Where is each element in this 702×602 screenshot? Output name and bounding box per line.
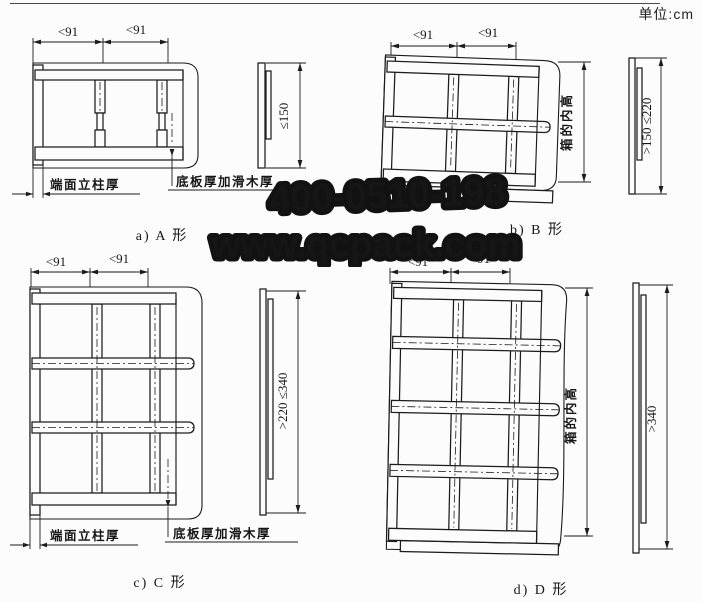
figure-d-front-view-drawing bbox=[386, 281, 567, 555]
figure-b-caption: b) B 形 bbox=[510, 222, 564, 238]
dim-label-91-right: <91 bbox=[478, 25, 498, 40]
box-inner-height-label: 箱的内高 bbox=[563, 386, 578, 444]
dim-label-91-right: <91 bbox=[109, 253, 129, 266]
figure-c-type-c-end-panel: <91 <91 端面立柱厚 bbox=[0, 253, 351, 602]
figure-a-caption: a) A 形 bbox=[136, 228, 188, 244]
figure-c-post-thickness-dim: 端面立柱厚 bbox=[10, 515, 138, 549]
dim-label-91-left: <91 bbox=[413, 27, 433, 42]
figure-d-side-view-drawing: >340 bbox=[633, 283, 673, 553]
figure-c-side-view-drawing: >220 ≤340 bbox=[260, 289, 306, 515]
figure-b-inner-height-dimension: 箱的内高 bbox=[558, 62, 591, 182]
figure-b-front-view-drawing bbox=[381, 55, 561, 203]
bottom-board-label: 底板厚加滑木厚 bbox=[176, 174, 274, 189]
scanned-diagram-page: 单位:cm <91 <91 bbox=[0, 0, 702, 602]
figure-c-front-view-drawing bbox=[30, 287, 202, 519]
figure-d-caption: d) D 形 bbox=[514, 582, 569, 598]
dim-label-91-right: <91 bbox=[470, 253, 490, 266]
figure-b-type-b-end-panel: <91 <91 箱的内高 bbox=[351, 18, 702, 253]
figure-d-inner-height-dimension: 箱的内高 bbox=[563, 288, 593, 536]
post-thickness-label: 端面立柱厚 bbox=[50, 528, 120, 543]
side-height-dim-label: ≤150 bbox=[276, 103, 291, 130]
figure-a-post-thickness-dim: 端面立柱厚 bbox=[12, 165, 140, 198]
dim-label-91-left: <91 bbox=[408, 254, 428, 269]
top-rule-line bbox=[10, 3, 660, 4]
dim-label-91-right: <91 bbox=[126, 22, 146, 37]
dim-label-91-left: <91 bbox=[58, 24, 78, 39]
figure-c-caption: c) C 形 bbox=[133, 575, 186, 591]
side-height-dim-label: >150 ≤220 bbox=[639, 98, 654, 155]
side-height-dim-label: >340 bbox=[644, 406, 659, 433]
figure-b-side-view-drawing: >150 ≤220 bbox=[629, 58, 667, 194]
figure-d-type-d-end-panel: <91 <91 箱的内高 bbox=[351, 253, 702, 602]
side-height-dim-label: >220 ≤340 bbox=[275, 373, 290, 430]
figure-a-side-view-drawing: ≤150 bbox=[258, 63, 306, 168]
bottom-board-label: 底板厚加滑木厚 bbox=[173, 526, 271, 541]
figure-a-type-a-end-panel: <91 <91 端面立柱厚 bbox=[0, 18, 351, 253]
box-inner-height-label: 箱的内高 bbox=[559, 93, 574, 151]
post-thickness-label: 端面立柱厚 bbox=[50, 177, 120, 192]
dim-label-91-left: <91 bbox=[46, 254, 66, 269]
